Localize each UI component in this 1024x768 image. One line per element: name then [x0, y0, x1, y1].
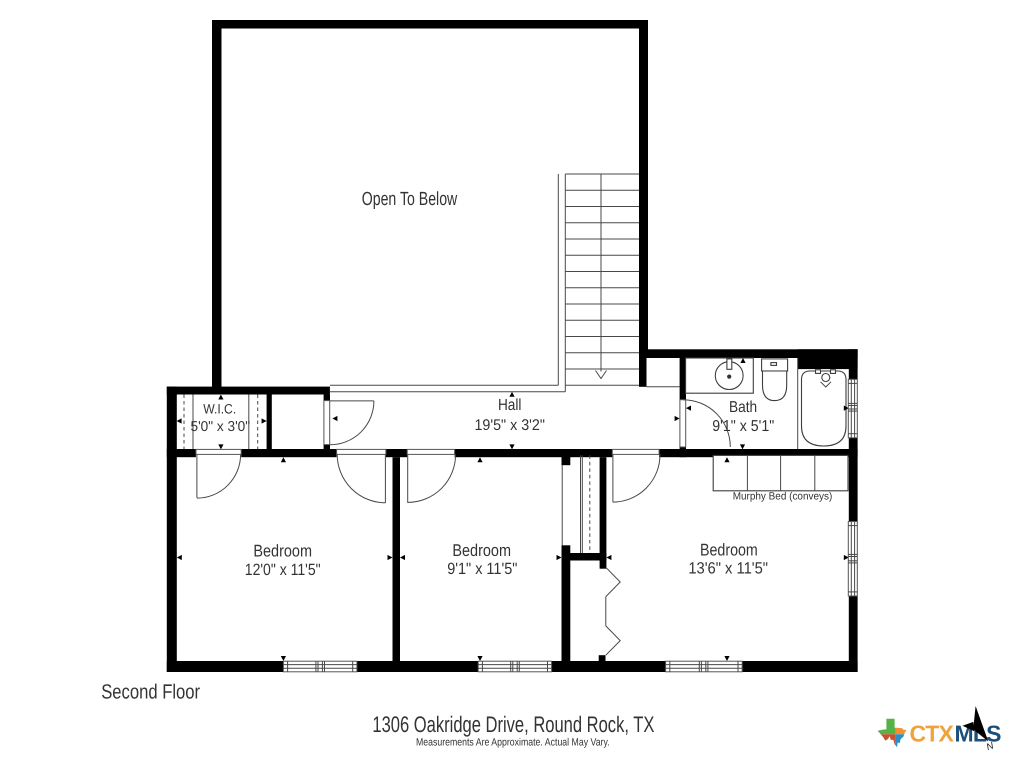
svg-text:Bedroom: Bedroom: [700, 540, 758, 559]
svg-text:Second Floor: Second Floor: [101, 681, 200, 704]
svg-text:W.I.C.: W.I.C.: [203, 402, 236, 417]
svg-text:5'0" x 3'0": 5'0" x 3'0": [191, 419, 251, 435]
svg-text:13'6" x 11'5": 13'6" x 11'5": [688, 560, 768, 578]
svg-text:Bedroom: Bedroom: [452, 541, 511, 560]
svg-text:9'1" x 5'1": 9'1" x 5'1": [712, 418, 774, 435]
svg-text:Hall: Hall: [498, 397, 522, 414]
svg-text:CTX: CTX: [910, 721, 955, 747]
svg-text:9'1" x 11'5": 9'1" x 11'5": [447, 560, 517, 578]
svg-text:Open To Below: Open To Below: [362, 189, 458, 210]
svg-text:1306 Oakridge Drive, Round Roc: 1306 Oakridge Drive, Round Rock, TX: [372, 712, 654, 737]
svg-text:19'5" x 3'2": 19'5" x 3'2": [474, 417, 545, 434]
svg-text:12'0" x 11'5": 12'0" x 11'5": [245, 561, 321, 579]
svg-text:Bath: Bath: [729, 399, 757, 416]
svg-text:Measurements Are Approximate.: Measurements Are Approximate. Actual May…: [416, 736, 610, 748]
svg-text:Bedroom: Bedroom: [253, 542, 312, 561]
svg-text:Murphy Bed (conveys): Murphy Bed (conveys): [733, 490, 833, 502]
